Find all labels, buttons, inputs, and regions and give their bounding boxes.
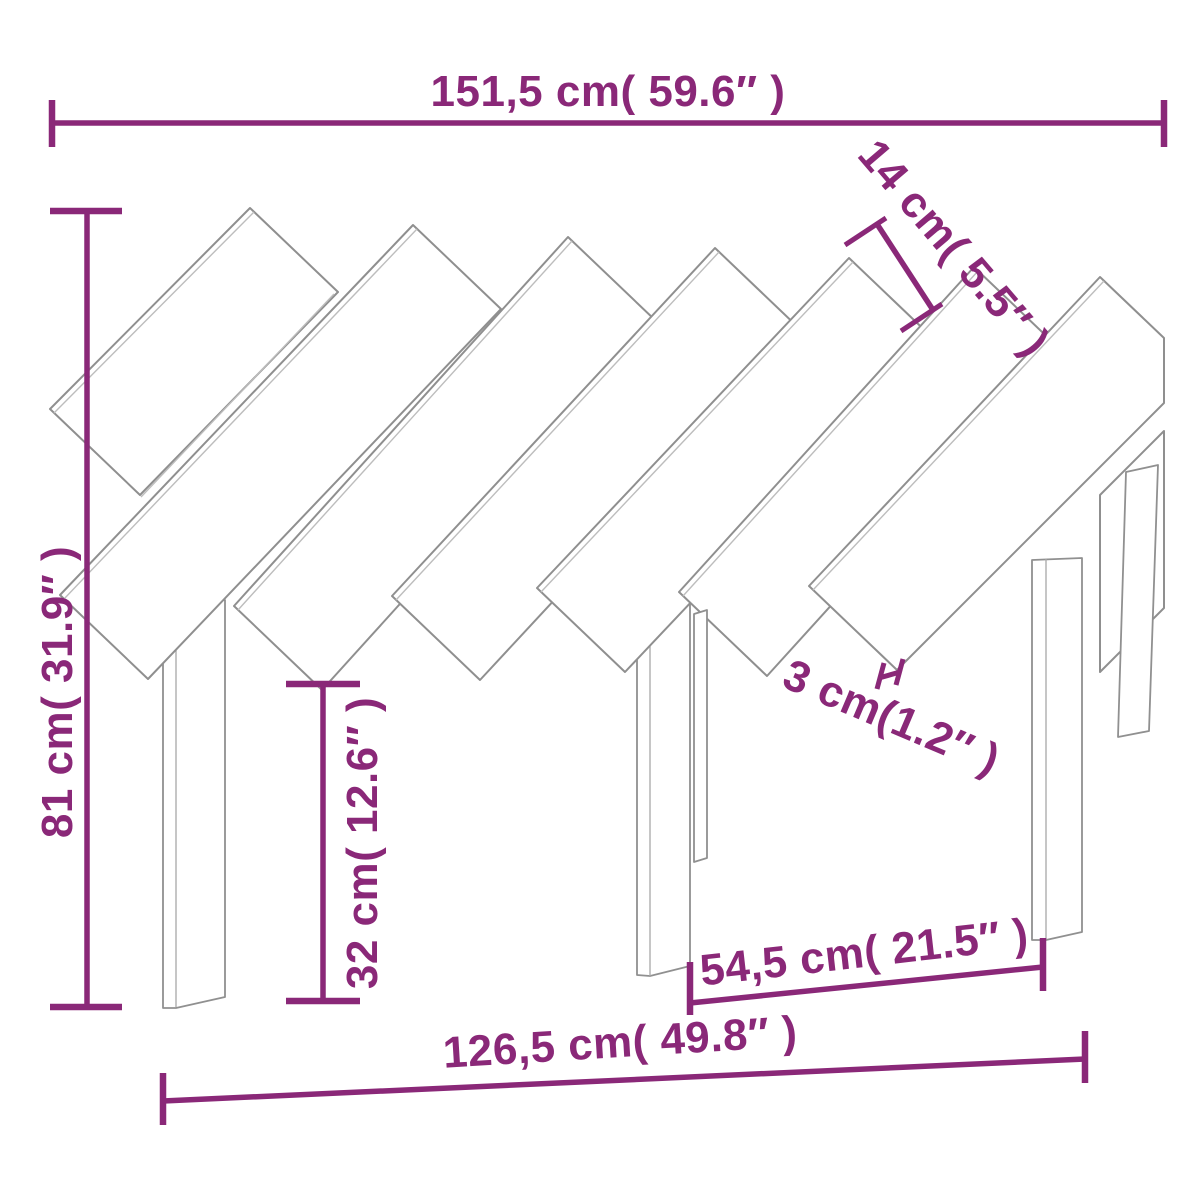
right-leg (1032, 558, 1082, 940)
middle-back-leg (694, 610, 707, 862)
slat-gap-label: 3 cm(1.2″ ) (776, 650, 1006, 785)
overall-width-label: 151,5 cm( 59.6″ ) (431, 67, 786, 116)
base-width-label: 126,5 cm( 49.8″ ) (441, 1007, 798, 1078)
diagram-canvas: 151,5 cm( 59.6″ ) 81 cm( 31.9″ ) 14 cm( … (0, 0, 1200, 1200)
overall-height-label: 81 cm( 31.9″ ) (33, 546, 82, 838)
leg-height-label: 32 cm( 12.6″ ) (338, 697, 387, 989)
left-leg (163, 600, 225, 1008)
headboard-dimension-diagram: 151,5 cm( 59.6″ ) 81 cm( 31.9″ ) 14 cm( … (0, 0, 1200, 1200)
